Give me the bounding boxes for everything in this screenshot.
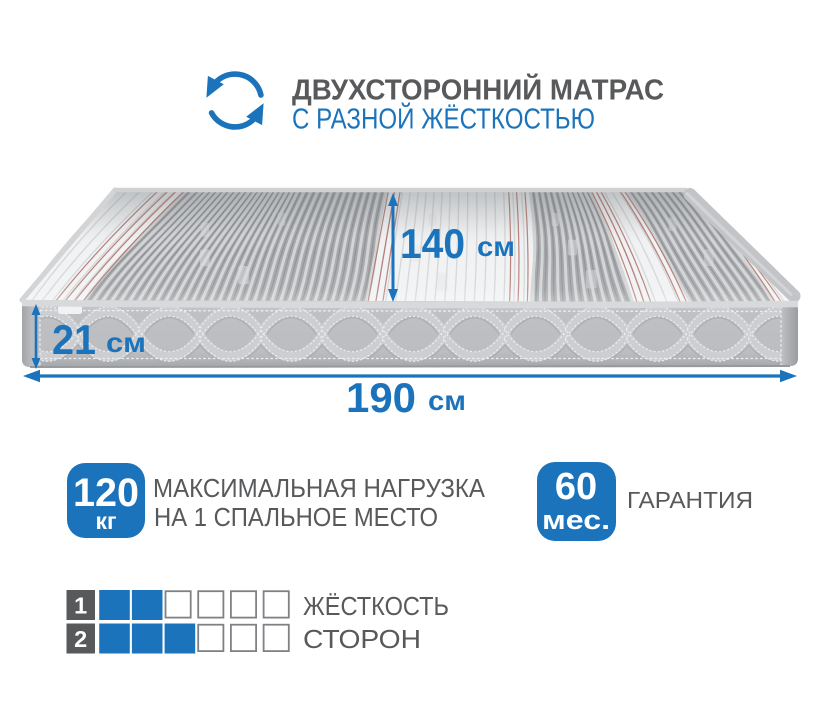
svg-text:МАКСИМАЛЬНАЯ НАГРУЗКА: МАКСИМАЛЬНАЯ НАГРУЗКА — [153, 473, 486, 503]
svg-text:см: см — [477, 231, 515, 262]
svg-text:ЖЁСТКОСТЬ: ЖЁСТКОСТЬ — [303, 591, 449, 621]
svg-text:НА 1 СПАЛЬНОЕ МЕСТО: НА 1 СПАЛЬНОЕ МЕСТО — [154, 502, 438, 532]
svg-text:мес.: мес. — [542, 505, 610, 535]
svg-text:140: 140 — [400, 220, 465, 267]
svg-text:2: 2 — [74, 626, 87, 652]
svg-text:ГАРАНТИЯ: ГАРАНТИЯ — [627, 487, 753, 513]
svg-text:21: 21 — [52, 316, 96, 363]
svg-text:ДВУХСТОРОННИЙ МАТРАС: ДВУХСТОРОННИЙ МАТРАС — [292, 73, 664, 107]
svg-text:см: см — [428, 385, 466, 416]
svg-text:см: см — [106, 327, 146, 358]
svg-text:60: 60 — [555, 466, 597, 508]
svg-text:190: 190 — [346, 374, 416, 421]
svg-text:кг: кг — [95, 508, 116, 534]
svg-text:С РАЗНОЙ ЖЁСТКОСТЬЮ: С РАЗНОЙ ЖЁСТКОСТЬЮ — [292, 102, 595, 136]
svg-text:1: 1 — [74, 593, 87, 619]
svg-text:СТОРОН: СТОРОН — [303, 624, 421, 654]
